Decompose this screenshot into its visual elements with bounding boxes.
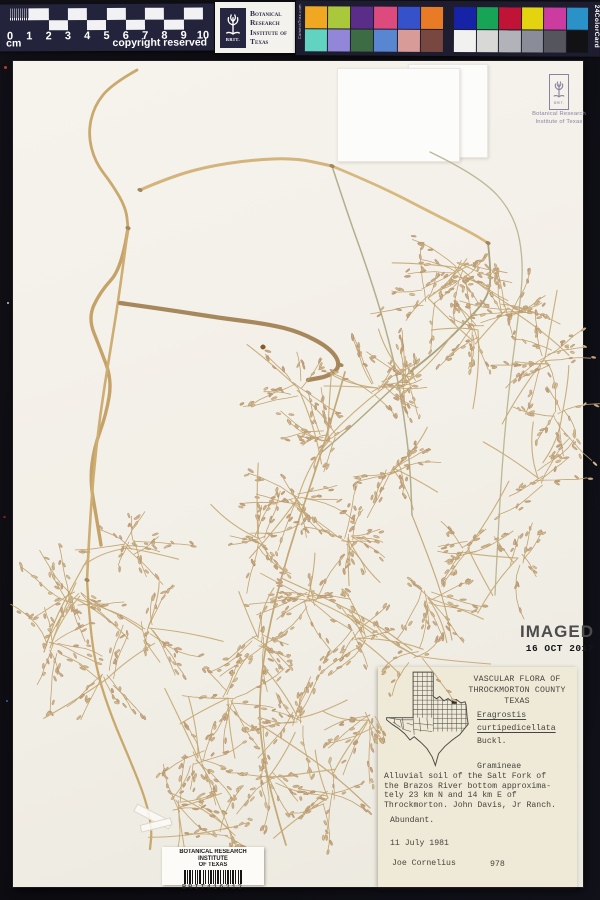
ruler-block [87, 20, 106, 30]
ruler-block [126, 8, 145, 20]
ruler-block [87, 8, 106, 20]
barcode-bars [168, 870, 258, 884]
brit-card-org-line: Research [250, 18, 287, 28]
color-swatch [521, 30, 543, 52]
ruler-block [164, 8, 183, 20]
ruler-number: 1 [26, 30, 32, 42]
brit-stamp-line1: Botanical Research [527, 111, 591, 118]
fragment-packet [337, 68, 460, 162]
label-locality: Alluvial soil of the Salt Fork ofthe Bra… [384, 772, 556, 810]
color-swatch [374, 30, 396, 52]
label-collection-date: 11 July 1981 [390, 839, 449, 848]
color-swatch [421, 30, 443, 52]
throckmorton-county-marker [452, 699, 457, 704]
color-swatch [351, 29, 373, 51]
barcode-org-line2: OF TEXAS [164, 862, 262, 869]
color-swatch [566, 31, 588, 53]
brit-logo-text: BRIT. [226, 37, 240, 42]
label-locality-line: Throckmorton. John Davis, Jr Ranch. [384, 801, 556, 811]
color-swatch [544, 8, 566, 30]
specimen-label: VASCULAR FLORA OFTHROCKMORTON COUNTYTEXA… [378, 667, 577, 887]
color-swatch [566, 8, 588, 30]
color-swatch [398, 7, 420, 29]
ruler-number: 2 [46, 30, 52, 42]
color-card-name-label: 24ColorCard [593, 5, 600, 48]
label-locality-line: the Brazos River bottom approxima- [384, 782, 556, 792]
dust-speck [3, 516, 6, 518]
brit-logo-card: BRIT. BotanicalResearchInstitute ofTexas [215, 2, 295, 53]
ruler-number: 3 [65, 30, 71, 42]
color-swatch [454, 30, 476, 52]
brit-stamp-tree-icon [552, 77, 566, 101]
brit-tree-icon [224, 11, 242, 37]
ruler-block [145, 8, 164, 20]
ruler-block [10, 20, 29, 30]
ruler-block [164, 20, 183, 30]
ruler-copyright-label: copyright reserved [113, 36, 208, 48]
color-swatch [499, 30, 521, 52]
color-swatch [328, 29, 350, 51]
ruler-block [184, 7, 203, 19]
barcode-number: BRIT416212 [162, 884, 264, 892]
color-swatch [421, 7, 443, 29]
label-collection-number: 978 [490, 860, 505, 869]
label-author: Buckl. [477, 737, 506, 746]
label-heading-line: TEXAS [460, 696, 574, 707]
ruler-number: 4 [84, 30, 90, 42]
brit-card-org-name: BotanicalResearchInstitute ofTexas [250, 9, 287, 47]
ruler-block [29, 8, 48, 20]
herbarium-scan: 012345678910 cm copyright reserved BRIT.… [0, 0, 600, 900]
brit-stamp-line2: Institute of Texas [527, 119, 591, 126]
brit-card-org-line: Texas [250, 37, 287, 47]
barcode-org-line1: BOTANICAL RESEARCH INSTITUTE [164, 849, 262, 862]
dust-speck [6, 700, 8, 702]
ruler-block [68, 8, 87, 20]
imaged-stamp: IMAGED 16 OCT 2017 [508, 622, 594, 654]
ruler-block [184, 19, 203, 29]
brit-ink-stamp: BRIT. Botanical Research Institute of Te… [527, 74, 591, 126]
dust-speck [7, 302, 9, 304]
color-swatch [544, 31, 566, 53]
ruler-block [49, 20, 68, 30]
brit-stamp-box: BRIT. [549, 74, 569, 110]
color-swatch [454, 7, 476, 29]
color-swatch [328, 6, 350, 28]
color-swatch [398, 30, 420, 52]
ruler-unit-label: cm [6, 37, 21, 49]
color-swatch [476, 30, 498, 52]
color-card-panel-right [454, 7, 588, 53]
ruler-block [106, 20, 125, 30]
label-heading-line: VASCULAR FLORA OF [460, 674, 574, 685]
ruler-block [10, 8, 29, 20]
label-heading: VASCULAR FLORA OFTHROCKMORTON COUNTYTEXA… [460, 674, 574, 707]
color-swatch [305, 29, 327, 51]
color-swatch [476, 7, 498, 29]
color-card-brand-label: CameraTrax.com [297, 4, 302, 39]
brit-card-org-line: Institute of [250, 28, 287, 38]
brit-stamp-acronym: BRIT. [554, 101, 564, 105]
color-card-panel-left [305, 6, 443, 52]
color-swatch [305, 6, 327, 28]
barcode-label: BOTANICAL RESEARCH INSTITUTE OF TEXAS BR… [162, 847, 264, 885]
label-locality-line: tely 23 km N and 14 km E of [384, 791, 556, 801]
dust-speck [4, 66, 7, 69]
ruler-block [145, 20, 164, 30]
brit-card-org-line: Botanical [250, 9, 287, 19]
ruler-block [126, 20, 145, 30]
label-heading-line: THROCKMORTON COUNTY [460, 685, 574, 696]
color-swatch [374, 7, 396, 29]
ruler-block [48, 8, 67, 20]
imaged-stamp-date: 16 OCT 2017 [508, 643, 594, 654]
imaged-stamp-text: IMAGED [508, 622, 594, 642]
label-species: curtipedicellata [477, 724, 556, 733]
label-abundance: Abundant. [390, 816, 434, 825]
brit-logo-box: BRIT. [220, 8, 246, 48]
label-collector: Joe Cornelius [392, 859, 456, 868]
ruler-checker-blocks [10, 7, 203, 30]
ruler-block [106, 8, 125, 20]
label-family: Gramineae [477, 762, 521, 771]
color-swatch [351, 6, 373, 28]
scale-ruler-card: 012345678910 cm copyright reserved [0, 3, 214, 51]
label-locality-line: Alluvial soil of the Salt Fork of [384, 772, 556, 782]
label-genus: Eragrostis [477, 711, 526, 720]
ruler-block [29, 20, 48, 30]
color-calibration-card: CameraTrax.com 24ColorCard [296, 0, 600, 57]
ruler-number: 5 [103, 30, 109, 42]
color-swatch [521, 7, 543, 29]
ruler-block [68, 20, 87, 30]
color-swatch [499, 7, 521, 29]
